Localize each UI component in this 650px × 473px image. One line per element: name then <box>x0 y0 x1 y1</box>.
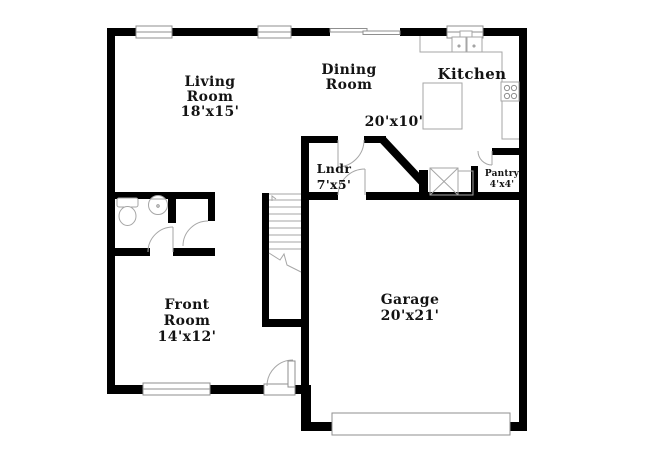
label-pantry: Pantry <box>485 169 520 179</box>
label-front-room: Room <box>164 313 211 329</box>
wall-segment <box>107 385 143 394</box>
wall-segment <box>107 248 150 256</box>
wall-segment <box>172 28 258 36</box>
label-garage: Garage <box>381 292 440 308</box>
label-dining-room-dims: 20'x10' <box>365 114 424 130</box>
toilet-bowl <box>119 207 136 226</box>
wall-segment <box>168 194 176 223</box>
label-laundry: Lndr <box>317 161 352 176</box>
kitchen-island <box>423 83 462 129</box>
label-kitchen: Kitchen <box>438 65 507 83</box>
bathroom-sink-icon <box>149 196 168 215</box>
label-living-room-dims: 18'x15' <box>181 104 240 120</box>
label-pantry-dims: 4'x4' <box>490 180 514 190</box>
wall-segment <box>519 28 527 431</box>
wall-segment <box>173 248 215 256</box>
floor-plan-canvas: Living Room 18'x15' Dining Room 20'x10' … <box>0 0 650 473</box>
wall-segment <box>366 192 527 200</box>
wall-segment <box>301 192 338 200</box>
faucet <box>460 31 472 37</box>
wall-segment <box>208 192 215 221</box>
label-living-room: Room <box>187 89 234 105</box>
wall-segment <box>107 28 115 394</box>
label-front-room: Front <box>164 297 209 313</box>
wall-segment <box>262 193 269 327</box>
toilet-icon <box>117 198 138 226</box>
wall-segment <box>210 385 266 394</box>
label-living-room: Living <box>185 74 236 90</box>
toilet-tank <box>117 198 138 207</box>
label-laundry-dims: 7'x5' <box>317 177 352 192</box>
label-garage-dims: 20'x21' <box>381 308 440 324</box>
wall-segment <box>400 28 447 36</box>
stove-icon <box>501 82 519 101</box>
wall-segment <box>492 148 527 155</box>
label-front-room-dims: 14'x12' <box>158 329 217 345</box>
wall-segment <box>301 136 338 143</box>
front-door-leaf <box>288 361 295 387</box>
label-dining-room: Dining <box>321 62 376 78</box>
sliding-door-panel <box>363 31 400 35</box>
wall-segment <box>262 319 309 327</box>
wall-segment <box>291 28 330 36</box>
floor-plan: Living Room 18'x15' Dining Room 20'x10' … <box>0 0 650 473</box>
stove-body <box>501 82 519 101</box>
sink-basin <box>467 37 482 52</box>
label-dining-room: Room <box>326 77 373 93</box>
wall-segment <box>301 136 309 431</box>
garage-door <box>332 413 510 435</box>
sliding-door-panel <box>330 29 367 33</box>
